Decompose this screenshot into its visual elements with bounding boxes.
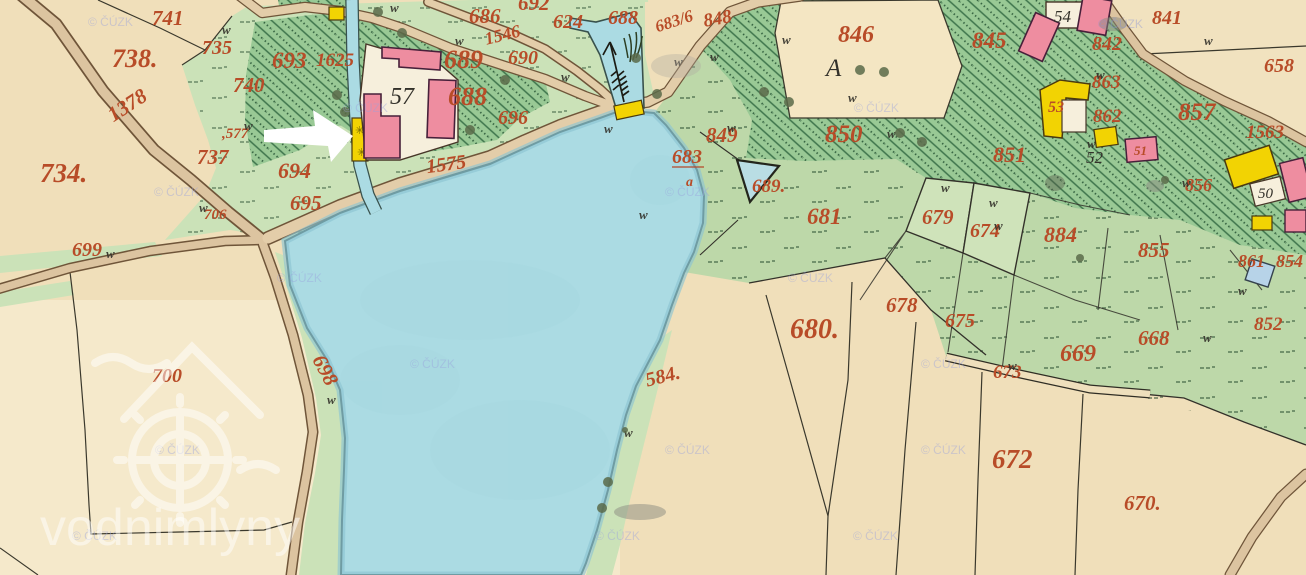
svg-text:842: 842 bbox=[1092, 33, 1122, 55]
svg-text:846: 846 bbox=[838, 22, 874, 48]
svg-text:w: w bbox=[639, 207, 648, 222]
svg-text:w: w bbox=[727, 120, 736, 135]
svg-text:689: 689 bbox=[444, 45, 483, 74]
svg-text:© ČÚZK: © ČÚZK bbox=[665, 184, 710, 199]
svg-text:1563: 1563 bbox=[1246, 122, 1284, 143]
svg-text:854: 854 bbox=[1276, 251, 1303, 271]
svg-text:w: w bbox=[561, 69, 570, 84]
svg-text:841: 841 bbox=[1152, 7, 1182, 29]
svg-text:© ČÚZK: © ČÚZK bbox=[921, 442, 966, 457]
svg-text:851: 851 bbox=[993, 142, 1026, 167]
svg-text:695: 695 bbox=[290, 191, 322, 215]
svg-text:w: w bbox=[390, 0, 399, 15]
svg-text:670.: 670. bbox=[1124, 491, 1161, 515]
svg-text:w: w bbox=[1182, 175, 1191, 190]
svg-text:© ČÚZK: © ČÚZK bbox=[410, 356, 455, 371]
svg-text:738.: 738. bbox=[112, 44, 158, 73]
svg-text:w: w bbox=[1204, 33, 1213, 48]
svg-text:692: 692 bbox=[518, 0, 550, 15]
svg-text:690: 690 bbox=[508, 47, 538, 69]
svg-text:w: w bbox=[887, 126, 896, 141]
svg-text:850: 850 bbox=[825, 121, 863, 148]
svg-text:735: 735 bbox=[202, 37, 232, 59]
svg-text:681: 681 bbox=[807, 204, 842, 229]
svg-text:694: 694 bbox=[278, 158, 311, 183]
svg-text:693: 693 bbox=[272, 48, 307, 73]
svg-text:vodnimlyny: vodnimlyny bbox=[40, 499, 300, 557]
svg-text:w: w bbox=[710, 49, 719, 64]
svg-text:A: A bbox=[824, 55, 842, 82]
svg-text:53: 53 bbox=[1048, 99, 1064, 116]
svg-text:© ČÚZK: © ČÚZK bbox=[154, 184, 199, 199]
svg-text:w: w bbox=[1087, 136, 1096, 151]
svg-text:1625: 1625 bbox=[316, 50, 355, 71]
svg-text:w: w bbox=[455, 33, 464, 48]
svg-text:884: 884 bbox=[1044, 222, 1077, 247]
svg-text:862: 862 bbox=[1093, 106, 1122, 127]
svg-text:© ČÚZK: © ČÚZK bbox=[854, 100, 899, 115]
svg-text:740: 740 bbox=[233, 73, 265, 97]
svg-text:w: w bbox=[1238, 283, 1247, 298]
svg-text:w: w bbox=[604, 121, 613, 136]
svg-text:669: 669 bbox=[1060, 341, 1096, 367]
svg-text:686: 686 bbox=[469, 4, 501, 28]
svg-text:54: 54 bbox=[1054, 7, 1072, 26]
svg-text:w: w bbox=[244, 118, 253, 133]
svg-text:845: 845 bbox=[972, 28, 1007, 53]
svg-text:689.: 689. bbox=[752, 176, 785, 197]
svg-text:852: 852 bbox=[1254, 314, 1283, 335]
svg-text:57: 57 bbox=[390, 84, 415, 110]
svg-text:w: w bbox=[106, 246, 115, 261]
svg-text:675: 675 bbox=[945, 310, 975, 332]
svg-text:© ČÚZK: © ČÚZK bbox=[88, 14, 133, 29]
svg-text:688: 688 bbox=[448, 82, 487, 111]
svg-text:861: 861 bbox=[1238, 251, 1265, 271]
svg-text:737: 737 bbox=[197, 145, 230, 169]
svg-text:857: 857 bbox=[1178, 99, 1217, 126]
svg-text:© ČÚZK: © ČÚZK bbox=[277, 270, 322, 285]
svg-text:w: w bbox=[941, 180, 950, 195]
svg-text:© ČÚZK: © ČÚZK bbox=[595, 528, 640, 543]
svg-text:© ČÚZK: © ČÚZK bbox=[665, 442, 710, 457]
svg-text:679: 679 bbox=[922, 205, 954, 229]
svg-text:w: w bbox=[994, 218, 1003, 233]
svg-text:668: 668 bbox=[1138, 326, 1170, 350]
svg-text:w: w bbox=[1096, 67, 1105, 82]
svg-text:624: 624 bbox=[553, 11, 583, 33]
svg-text:w: w bbox=[327, 392, 336, 407]
svg-text:© ČÚZK: © ČÚZK bbox=[343, 100, 388, 115]
svg-text:855: 855 bbox=[1138, 238, 1170, 262]
svg-text:680.: 680. bbox=[790, 314, 839, 345]
svg-text:688: 688 bbox=[608, 7, 638, 29]
svg-text:683: 683 bbox=[672, 146, 702, 168]
svg-text:w: w bbox=[1008, 358, 1017, 373]
svg-text:w: w bbox=[989, 195, 998, 210]
svg-text:658: 658 bbox=[1264, 55, 1294, 77]
svg-text:699: 699 bbox=[72, 239, 102, 261]
svg-text:w: w bbox=[782, 32, 791, 47]
svg-text:678: 678 bbox=[886, 293, 918, 317]
svg-text:741: 741 bbox=[152, 6, 184, 30]
svg-text:w: w bbox=[199, 200, 208, 215]
svg-text:50: 50 bbox=[1258, 186, 1274, 202]
svg-text:© ČÚZK: © ČÚZK bbox=[853, 528, 898, 543]
svg-text:672: 672 bbox=[992, 444, 1033, 474]
svg-text:© ČÚZK: © ČÚZK bbox=[1098, 16, 1143, 31]
svg-text:734.: 734. bbox=[40, 158, 87, 188]
svg-text:w: w bbox=[222, 22, 231, 37]
svg-text:© ČÚZK: © ČÚZK bbox=[921, 356, 966, 371]
svg-text:51: 51 bbox=[1134, 143, 1147, 158]
svg-text:© ČÚZK: © ČÚZK bbox=[788, 270, 833, 285]
svg-text:696: 696 bbox=[498, 107, 528, 129]
svg-text:w: w bbox=[1203, 330, 1212, 345]
